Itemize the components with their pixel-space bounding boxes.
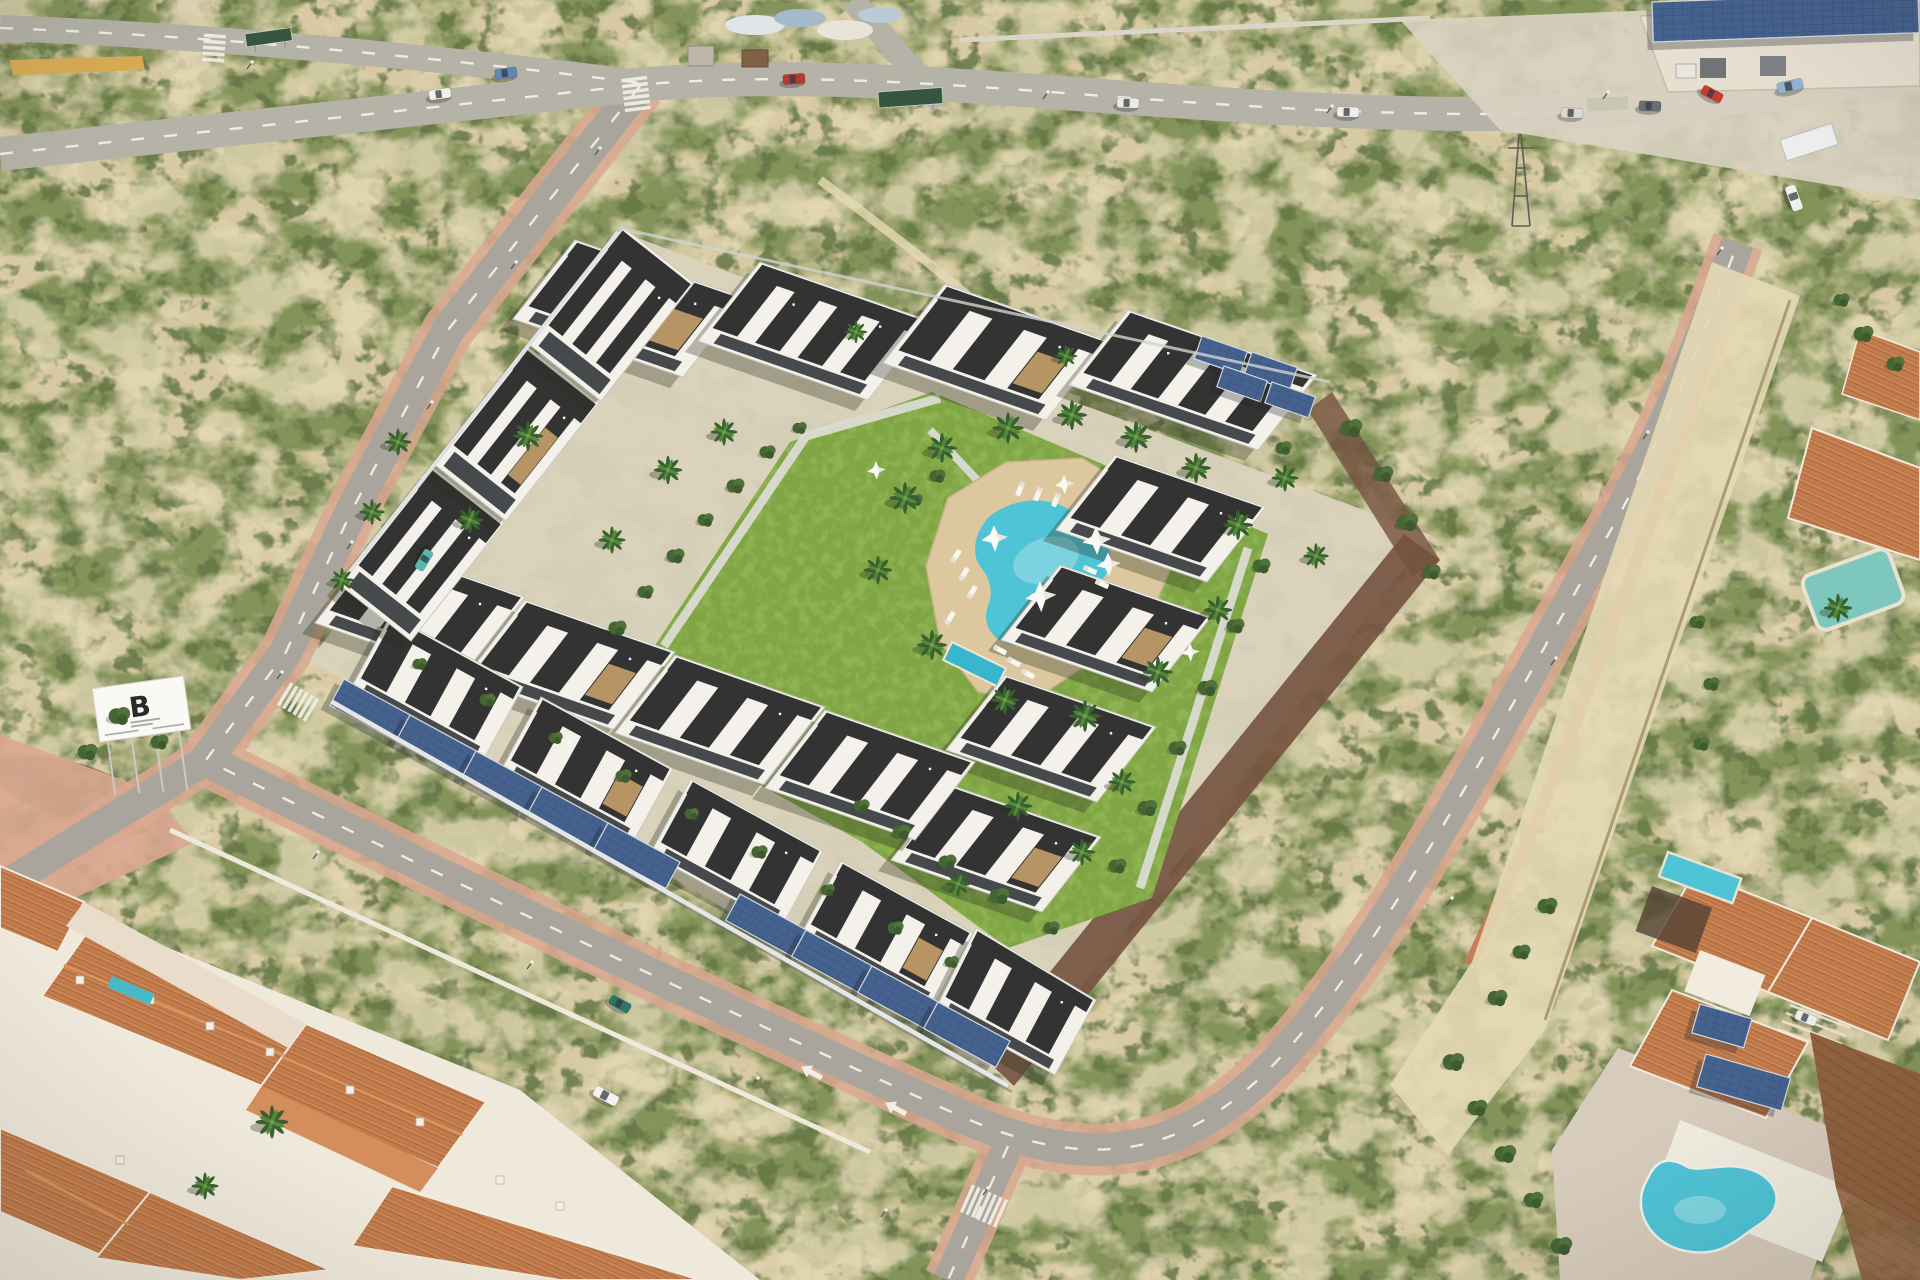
vignette bbox=[0, 0, 1920, 1280]
aerial-photo: B bbox=[0, 0, 1920, 1280]
